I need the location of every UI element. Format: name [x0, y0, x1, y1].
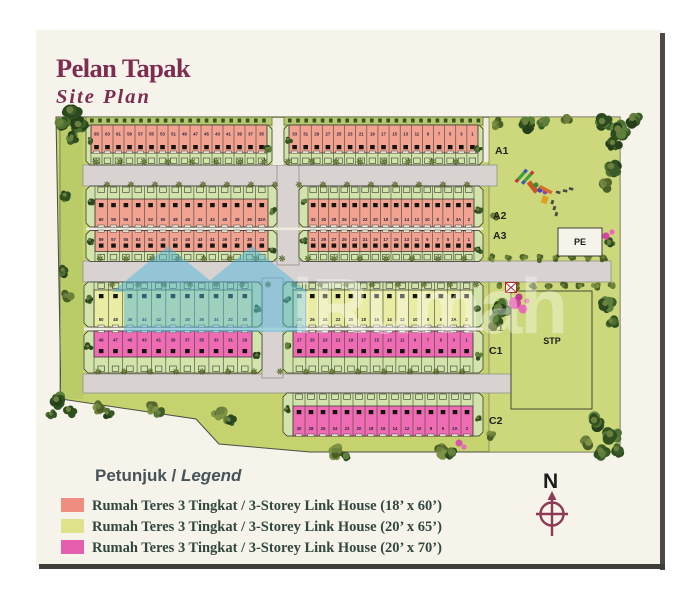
svg-text:19: 19 — [370, 132, 375, 137]
svg-text:2A: 2A — [452, 426, 458, 431]
svg-text:44: 44 — [198, 217, 203, 222]
svg-text:46: 46 — [185, 217, 190, 222]
svg-text:N: N — [543, 470, 558, 493]
svg-text:26: 26 — [321, 426, 326, 431]
svg-text:31: 31 — [311, 237, 316, 242]
svg-text:37: 37 — [248, 132, 253, 137]
svg-text:21: 21 — [359, 132, 364, 137]
svg-text:11: 11 — [415, 132, 420, 137]
svg-text:48: 48 — [113, 317, 118, 322]
svg-text:Rumah Teres 3 Tingkat / 3-Stor: Rumah Teres 3 Tingkat / 3-Storey Link Ho… — [92, 519, 442, 535]
svg-text:14: 14 — [404, 217, 409, 222]
svg-text:33: 33 — [259, 237, 264, 242]
svg-text:40: 40 — [222, 217, 227, 222]
svg-text:10: 10 — [425, 217, 430, 222]
svg-text:25: 25 — [337, 132, 342, 137]
svg-text:13: 13 — [404, 237, 409, 242]
svg-text:38: 38 — [235, 217, 240, 222]
svg-text:14: 14 — [393, 426, 398, 431]
svg-text:55: 55 — [124, 237, 129, 242]
svg-text:3A: 3A — [456, 217, 462, 222]
svg-text:A1: A1 — [495, 145, 509, 157]
svg-text:16: 16 — [381, 426, 386, 431]
svg-text:22: 22 — [363, 217, 368, 222]
svg-text:59: 59 — [99, 237, 104, 242]
svg-text:29: 29 — [314, 132, 319, 137]
svg-text:35: 35 — [259, 132, 264, 137]
svg-text:45: 45 — [128, 338, 133, 343]
svg-text:22: 22 — [345, 426, 350, 431]
svg-text:B1: B1 — [490, 322, 504, 334]
svg-text:53: 53 — [160, 132, 165, 137]
svg-text:27: 27 — [326, 132, 331, 137]
svg-text:41: 41 — [226, 132, 231, 137]
svg-text:43: 43 — [215, 132, 220, 137]
svg-text:27: 27 — [332, 237, 337, 242]
svg-text:39: 39 — [237, 132, 242, 137]
svg-text:17: 17 — [383, 237, 388, 242]
svg-text:32: 32 — [311, 217, 316, 222]
svg-text:iRumah: iRumah — [292, 262, 566, 350]
svg-text:51: 51 — [148, 237, 153, 242]
svg-text:33: 33 — [292, 132, 297, 137]
svg-text:43: 43 — [198, 237, 203, 242]
svg-text:33: 33 — [214, 338, 219, 343]
svg-text:29: 29 — [242, 338, 247, 343]
svg-text:39: 39 — [222, 237, 227, 242]
svg-text:A3: A3 — [493, 230, 507, 242]
svg-text:11: 11 — [415, 237, 420, 242]
svg-text:47: 47 — [173, 237, 178, 242]
svg-text:35: 35 — [199, 338, 204, 343]
svg-text:25: 25 — [342, 237, 347, 242]
svg-text:49: 49 — [182, 132, 187, 137]
svg-text:21: 21 — [363, 237, 368, 242]
svg-text:57: 57 — [111, 237, 116, 242]
svg-text:31: 31 — [303, 132, 308, 137]
svg-text:15: 15 — [392, 132, 397, 137]
svg-text:53: 53 — [136, 237, 141, 242]
svg-text:45: 45 — [185, 237, 190, 242]
svg-text:36: 36 — [247, 217, 252, 222]
svg-text:Pelan Tapak: Pelan Tapak — [56, 53, 191, 83]
svg-text:45: 45 — [204, 132, 209, 137]
svg-text:17: 17 — [381, 132, 386, 137]
svg-text:59: 59 — [127, 132, 132, 137]
svg-text:20: 20 — [357, 426, 362, 431]
svg-text:61: 61 — [116, 132, 121, 137]
svg-text:48: 48 — [173, 217, 178, 222]
svg-text:A2: A2 — [493, 210, 507, 222]
svg-text:31: 31 — [228, 338, 233, 343]
svg-text:Rumah Teres 3 Tingkat / 3-Stor: Rumah Teres 3 Tingkat / 3-Storey Link Ho… — [92, 540, 442, 556]
svg-text:Petunjuk / Legend: Petunjuk / Legend — [95, 466, 242, 485]
svg-text:19: 19 — [373, 237, 378, 242]
svg-text:47: 47 — [113, 338, 118, 343]
svg-text:54: 54 — [136, 217, 141, 222]
svg-text:65: 65 — [94, 132, 99, 137]
svg-text:10: 10 — [417, 426, 422, 431]
svg-text:Rumah Teres 3 Tingkat / 3-Stor: Rumah Teres 3 Tingkat / 3-Storey Link Ho… — [92, 498, 442, 514]
svg-text:12: 12 — [415, 217, 420, 222]
svg-text:23: 23 — [352, 237, 357, 242]
svg-text:50: 50 — [99, 317, 104, 322]
svg-text:37: 37 — [185, 338, 190, 343]
svg-text:20: 20 — [373, 217, 378, 222]
svg-text:PE: PE — [574, 237, 586, 247]
svg-text:35: 35 — [247, 237, 252, 242]
svg-text:49: 49 — [99, 338, 104, 343]
svg-text:41: 41 — [210, 237, 215, 242]
svg-text:18: 18 — [383, 217, 388, 222]
svg-text:30: 30 — [321, 217, 326, 222]
svg-text:57: 57 — [138, 132, 143, 137]
svg-text:58: 58 — [111, 217, 116, 222]
svg-text:41: 41 — [156, 338, 161, 343]
svg-text:28: 28 — [332, 217, 337, 222]
svg-text:24: 24 — [352, 217, 357, 222]
svg-text:63: 63 — [105, 132, 110, 137]
svg-text:30: 30 — [297, 426, 302, 431]
svg-text:16: 16 — [394, 217, 399, 222]
svg-text:28: 28 — [309, 426, 314, 431]
svg-text:C1: C1 — [489, 345, 503, 357]
svg-text:43: 43 — [142, 338, 147, 343]
svg-text:37: 37 — [235, 237, 240, 242]
svg-text:18: 18 — [369, 426, 374, 431]
svg-text:32A: 32A — [258, 217, 266, 222]
svg-text:26: 26 — [342, 217, 347, 222]
svg-text:12: 12 — [405, 426, 410, 431]
svg-text:29: 29 — [321, 237, 326, 242]
svg-text:50: 50 — [161, 217, 166, 222]
svg-text:13: 13 — [403, 132, 408, 137]
svg-text:24: 24 — [333, 426, 338, 431]
svg-text:60: 60 — [99, 217, 104, 222]
svg-text:15: 15 — [394, 237, 399, 242]
svg-text:C2: C2 — [489, 415, 503, 427]
svg-text:47: 47 — [193, 132, 198, 137]
svg-text:39: 39 — [171, 338, 176, 343]
svg-text:51: 51 — [171, 132, 176, 137]
svg-text:49: 49 — [161, 237, 166, 242]
svg-text:55: 55 — [149, 132, 154, 137]
svg-text:42: 42 — [210, 217, 215, 222]
svg-text:56: 56 — [124, 217, 129, 222]
svg-text:23: 23 — [348, 132, 353, 137]
svg-text:52: 52 — [148, 217, 153, 222]
